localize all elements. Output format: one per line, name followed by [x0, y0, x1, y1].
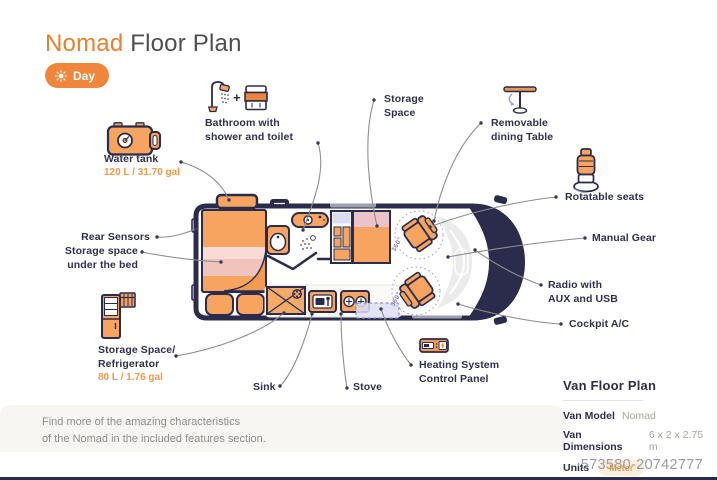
plus-sign: + — [233, 90, 241, 105]
roof-vent — [270, 199, 289, 208]
rotatable-seat-icon — [571, 148, 601, 194]
toilet — [267, 226, 289, 254]
title-accent: Nomad — [45, 30, 123, 57]
stove-unit — [341, 291, 369, 312]
van-model-row: Van Model Nomad — [563, 410, 713, 422]
side-mirror — [493, 195, 507, 205]
day-mode-button[interactable]: Day — [45, 63, 109, 88]
listing-id: 573580-20742777 — [581, 457, 703, 473]
sun-icon — [55, 70, 67, 82]
wardrobe — [331, 211, 352, 263]
van-dimensions-row: Van Dimensions 6 x 2 x 2.75 m — [563, 429, 713, 453]
water-tank-capacity: 120 L / 31.70 gal — [104, 167, 180, 180]
callout-manual-gear: Manual Gear — [592, 232, 656, 246]
callout-radio: Radio with AUX and USB — [548, 279, 618, 306]
shower-spray — [300, 236, 315, 250]
info-panel-title: Van Floor Plan — [563, 378, 713, 393]
windshield — [468, 206, 523, 318]
van-dimensions-label: Van Dimensions — [563, 429, 642, 453]
shower-icon — [208, 79, 231, 113]
rotation-360-label: 360° — [389, 291, 403, 308]
rear-sensor-mark — [192, 285, 198, 300]
refrigerator-capacity: 80 L / 1.76 gal — [98, 372, 163, 385]
rotation-360-label: 360° — [390, 236, 404, 253]
callout-storage-under-bed: Storage space under the bed — [38, 245, 138, 272]
roof-box — [217, 195, 257, 208]
callout-heating: Heating System Control Panel — [419, 359, 499, 386]
swivel-seat-front — [395, 271, 437, 313]
heating-panel-zone — [356, 303, 399, 318]
callout-water-tank: Water tank — [104, 153, 158, 167]
kitchen-area — [265, 285, 402, 318]
callout-storage-space: Storage Space — [384, 93, 424, 120]
heating-panel-icon — [419, 338, 449, 353]
window — [412, 313, 462, 319]
washbasin — [292, 213, 328, 227]
van-model-label: Van Model — [563, 410, 615, 422]
counter-unit — [267, 287, 305, 314]
side-mirror — [493, 315, 507, 325]
van-dimensions-value: 6 x 2 x 2.75 m — [649, 429, 713, 453]
features-note: Find more of the amazing characteristics… — [0, 405, 565, 452]
swivel-seat-front — [400, 212, 442, 254]
water-tank-icon — [105, 122, 163, 157]
page-title: Nomad Floor Plan — [45, 30, 242, 58]
callout-refrigerator: Storage Space/ Refrigerator — [98, 344, 175, 371]
callout-dining-table: Removable dining Table — [491, 117, 553, 144]
dining-table-icon — [502, 85, 538, 115]
bathroom-area — [267, 213, 332, 269]
refrigerator-icon — [100, 291, 136, 339]
bed-area — [202, 210, 266, 315]
sink-unit — [309, 291, 336, 312]
cab-area: 360° 360° — [389, 211, 472, 315]
dashboard-sketch — [455, 249, 468, 275]
bed-cushion — [206, 294, 233, 315]
folding-door — [268, 253, 316, 269]
day-label: Day — [73, 69, 95, 83]
window — [330, 202, 376, 208]
callout-rear-sensors: Rear Sensors — [65, 231, 150, 245]
van-model-value: Nomad — [622, 410, 656, 422]
title-rest: Floor Plan — [123, 30, 241, 57]
divider — [563, 400, 643, 401]
rear-sensor-mark — [192, 219, 198, 232]
storage-space-highlight — [354, 212, 389, 227]
toilet-icon — [243, 85, 269, 112]
callout-rotatable-seats: Rotatable seats — [565, 191, 644, 205]
bed-cushion — [237, 294, 264, 315]
callout-bathroom: Bathroom with shower and toilet — [205, 117, 293, 144]
callout-sink: Sink — [253, 381, 276, 395]
callout-cockpit-ac: Cockpit A/C — [569, 318, 629, 332]
dinette-bench — [353, 211, 390, 263]
van-body — [192, 195, 523, 326]
dinette-area — [331, 211, 390, 263]
callout-stove: Stove — [353, 381, 382, 395]
nomad-floorplan-page: 360° 360° — [0, 0, 718, 480]
